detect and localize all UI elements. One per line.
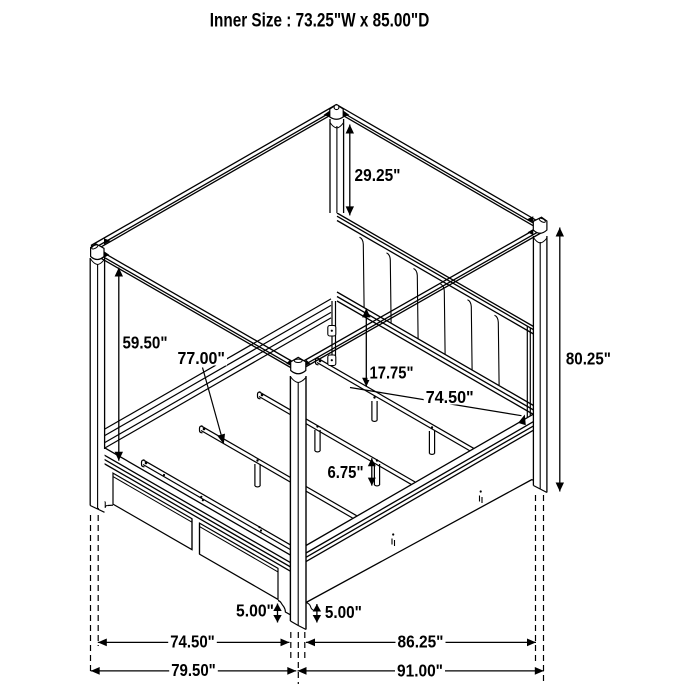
svg-text:74.50": 74.50" bbox=[170, 631, 215, 651]
svg-text:17.75": 17.75" bbox=[370, 363, 414, 383]
svg-text:Inner Size : 73.25"W x 85.00"D: Inner Size : 73.25"W x 85.00"D bbox=[210, 10, 430, 31]
svg-text:91.00": 91.00" bbox=[397, 661, 443, 681]
svg-text:6.75": 6.75" bbox=[328, 462, 364, 482]
svg-text:80.25": 80.25" bbox=[566, 349, 611, 369]
svg-text:29.25": 29.25" bbox=[355, 165, 401, 185]
svg-text:74.50": 74.50" bbox=[426, 387, 474, 407]
svg-text:77.00": 77.00" bbox=[178, 348, 226, 368]
svg-text:59.50": 59.50" bbox=[123, 333, 168, 353]
svg-text:86.25": 86.25" bbox=[398, 631, 444, 651]
svg-text:79.50": 79.50" bbox=[171, 660, 216, 680]
svg-text:5.00": 5.00" bbox=[325, 602, 362, 622]
svg-text:5.00": 5.00" bbox=[236, 601, 274, 621]
